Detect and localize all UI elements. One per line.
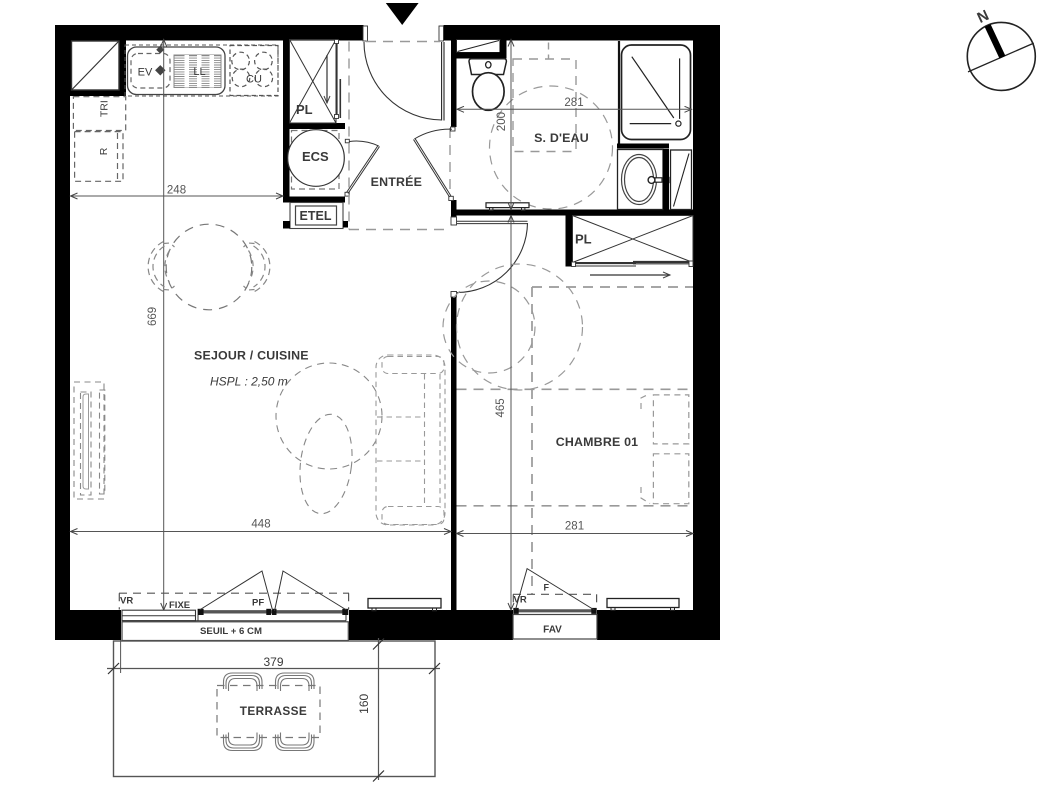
svg-text:VR: VR <box>514 595 527 606</box>
svg-text:281: 281 <box>565 521 584 533</box>
svg-text:PL: PL <box>575 232 592 247</box>
svg-text:PL: PL <box>296 102 313 117</box>
svg-text:669: 669 <box>147 307 159 326</box>
svg-text:EV: EV <box>138 67 153 79</box>
svg-text:281: 281 <box>564 97 583 109</box>
svg-text:HSPL : 2,50 m: HSPL : 2,50 m <box>210 374 288 388</box>
svg-text:PF: PF <box>252 598 264 609</box>
svg-text:SEUIL + 6 CM: SEUIL + 6 CM <box>200 626 262 637</box>
svg-text:465: 465 <box>495 398 507 417</box>
svg-text:F: F <box>544 583 550 593</box>
svg-text:VR: VR <box>120 596 133 607</box>
svg-text:CU: CU <box>246 74 262 86</box>
svg-text:LL: LL <box>193 66 205 78</box>
svg-text:ENTRÉE: ENTRÉE <box>371 174 422 189</box>
svg-text:CHAMBRE 01: CHAMBRE 01 <box>556 435 639 449</box>
svg-text:200: 200 <box>496 112 508 131</box>
svg-text:FAV: FAV <box>543 625 562 636</box>
svg-text:SEJOUR / CUISINE: SEJOUR / CUISINE <box>194 349 309 363</box>
svg-text:R: R <box>98 147 110 155</box>
svg-text:S. D'EAU: S. D'EAU <box>534 131 589 145</box>
svg-text:ECS: ECS <box>302 149 329 164</box>
svg-text:248: 248 <box>167 185 186 197</box>
svg-text:FIXE: FIXE <box>169 600 190 611</box>
svg-text:379: 379 <box>263 655 283 669</box>
svg-text:TERRASSE: TERRASSE <box>240 704 307 718</box>
svg-text:ETEL: ETEL <box>300 209 332 223</box>
svg-text:TRI: TRI <box>99 100 111 117</box>
svg-text:160: 160 <box>357 693 371 713</box>
svg-text:448: 448 <box>251 519 270 531</box>
